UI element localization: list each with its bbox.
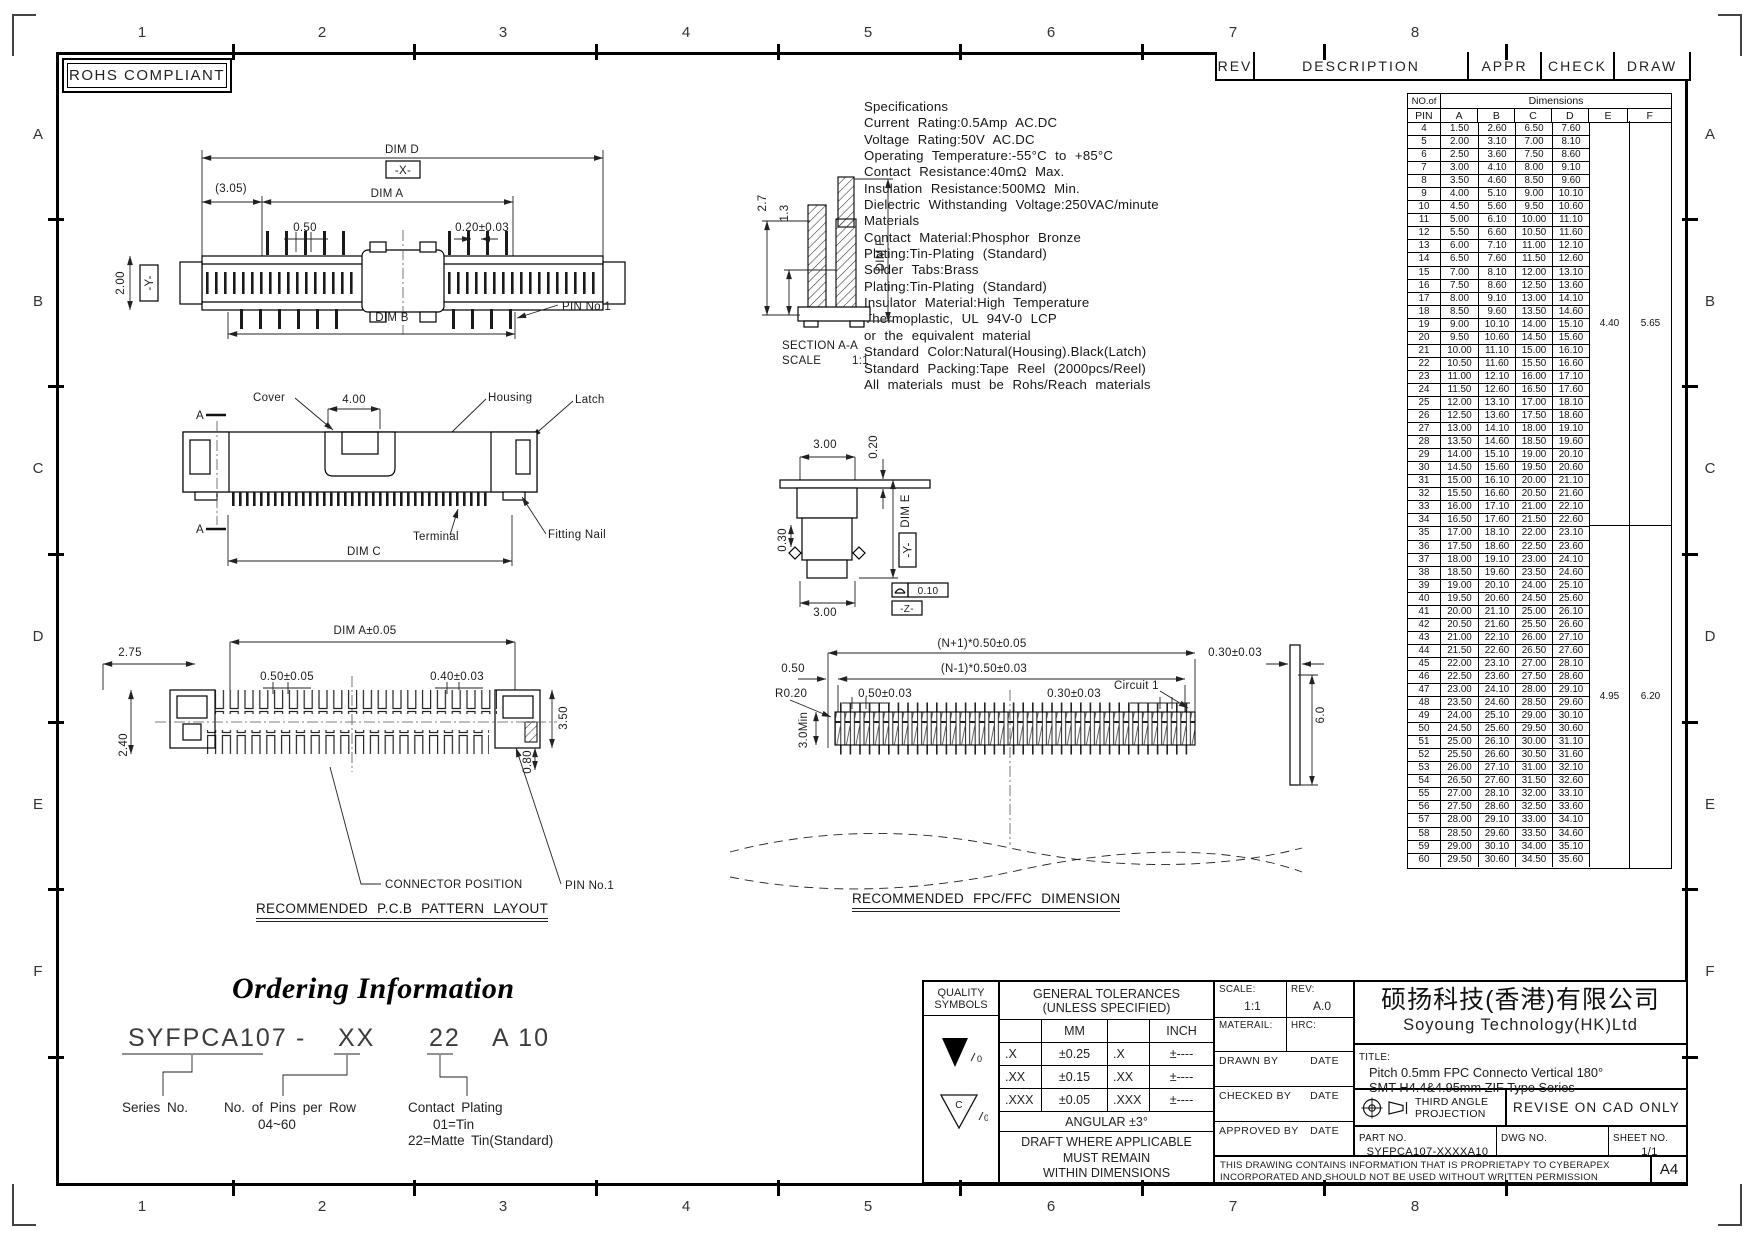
fpc-r020-label: R0.20 [775,688,807,700]
dim-table-body: 41.502.606.507.6052.003.107.008.1062.503… [1408,123,1590,867]
dim-table-row: 5024.5025.6029.5030.60 [1408,723,1590,736]
ef-value-f2: 6.20 [1630,526,1671,868]
dim-table-cell: 20 [1408,332,1441,344]
dim-table-cell: 14.50 [1441,462,1479,474]
rev-label: REV: [1291,984,1353,995]
zone-tick [48,721,64,724]
dim-table-cell: 29.00 [1441,841,1479,853]
dim-table-cell: 31 [1408,475,1441,487]
dim-27-label: 2.7 [757,195,769,212]
dim-table-cell: 18.50 [1516,436,1553,448]
dim-table-cell: 4.10 [1479,162,1516,174]
dim-table-row: 125.506.6010.5011.60 [1408,227,1590,240]
dim-table-cell: 33.60 [1553,801,1590,813]
pcb-350-label: 3.50 [558,706,570,730]
dim-table-cell: 25.10 [1553,580,1590,592]
dim-table-cell: 17.50 [1516,410,1553,422]
corner-mark [1718,14,1742,56]
dim-table-cell: 31.00 [1516,762,1553,774]
dim-table-ef-columns: 4.40 5.65 4.95 6.20 [1590,121,1671,868]
svg-text:0: 0 [984,1113,988,1123]
fpc-30min-label: 3.0Min [798,712,810,748]
dim-table-row: 3617.5018.6022.5023.60 [1408,541,1590,554]
zone-tick [777,1180,780,1196]
dim-table-row: 5326.0027.1031.0032.10 [1408,762,1590,775]
dim-table-row: 3115.0016.1020.0021.10 [1408,475,1590,488]
zone-row-label: F [1700,963,1720,980]
proprietary-note-line-1: THIS DRAWING CONTAINS INFORMATION THAT I… [1220,1160,1650,1172]
dim-table-cell: 15.00 [1441,475,1479,487]
dim-table-cell: 19.00 [1441,580,1479,592]
dim-table-cell: 42 [1408,619,1441,631]
dim-table-cell: 32.10 [1553,762,1590,774]
dim-table-cell: 12.00 [1441,397,1479,409]
dim-table-cell: 8 [1408,175,1441,187]
dim-table-cell: 7.60 [1553,123,1590,135]
dim-table-cell: 13.10 [1479,397,1516,409]
dim-table-cell: 10.60 [1479,332,1516,344]
specification-line: Contact Resistance:40mΩ Max. [864,164,1159,180]
zone-row-label: C [28,460,48,477]
dim-table-cell: 15.60 [1479,462,1516,474]
general-tolerances-table: GENERAL TOLERANCES (UNLESS SPECIFIED) MM… [1000,982,1215,1182]
circuit-1-label: Circuit 1 [1114,680,1159,692]
dim-table-row: 2110.0011.1015.0016.10 [1408,345,1590,358]
dim-c-label: DIM C [347,546,381,558]
dim-table-cell: 13.00 [1516,293,1553,305]
dim-table-cell: 27.10 [1479,762,1516,774]
dim-table-cell: 2.60 [1479,123,1516,135]
dim-table-cell: 20.00 [1441,606,1479,618]
dim-table-row: 3919.0020.1024.0025.10 [1408,580,1590,593]
dim-table-cell: 23 [1408,371,1441,383]
dim-table-cell: 41 [1408,606,1441,618]
dim-table-cell: 20.60 [1553,462,1590,474]
dim-table-row: 209.5010.6014.5015.60 [1408,332,1590,345]
ordering-information-title: Ordering Information [232,972,515,1006]
dim-table-cell: 15.50 [1441,488,1479,500]
dim-table-cell: 17.10 [1479,501,1516,513]
zone-row-label: D [1700,628,1720,645]
dim-table-cell: 22.50 [1516,541,1553,553]
zone-tick [1323,44,1326,60]
dim-table-cell: 9 [1408,188,1441,200]
dim-table-cell: 19 [1408,319,1441,331]
dim-table-cell: 18.10 [1553,397,1590,409]
dim-table-row: 104.505.609.5010.60 [1408,201,1590,214]
zone-tick [595,1180,598,1196]
dim-table-cell: 35 [1408,527,1441,539]
dim-table-cell: 30.60 [1479,854,1516,867]
zone-col-label: 3 [493,1198,513,1215]
zone-tick [1682,1056,1698,1059]
dim-table-cell: 25.60 [1553,593,1590,605]
dim-table-row: 3316.0017.1021.0022.10 [1408,501,1590,514]
dim-table-group-header: Dimensions [1441,94,1671,108]
zone-row-label: A [1700,126,1720,143]
specification-line: Materials [864,213,1159,229]
dim-table-cell: 12.60 [1553,253,1590,265]
tol-cell: ±---- [1150,1066,1213,1088]
dim-table-cell: 26.10 [1479,736,1516,748]
dim-table-cell: 16.10 [1553,345,1590,357]
dim-table-cell: 9.50 [1441,332,1479,344]
dim-table-cell: 26.10 [1553,606,1590,618]
dim-table-cell: 13.60 [1479,410,1516,422]
dim-table-cell: 20.50 [1516,488,1553,500]
dim-table-cell: 15 [1408,267,1441,279]
pcb-layout-title: RECOMMENDED P.C.B PATTERN LAYOUT [256,901,548,919]
dim-table-cell: 46 [1408,671,1441,683]
dim-table-cell: 29.50 [1441,854,1479,867]
ef-value-e1: 4.40 [1590,121,1630,525]
dim-table-cell: 43 [1408,632,1441,644]
dim-table-cell: 60 [1408,854,1441,867]
dim-table-cell: 25 [1408,397,1441,409]
dim-table-cell: 14 [1408,253,1441,265]
rev-value: A.0 [1291,999,1353,1013]
side-020-label: 0.20 [868,435,880,459]
y-datum-label: -Y- [144,275,156,290]
dim-table-row: 73.004.108.009.10 [1408,162,1590,175]
dim-table-cell: 45 [1408,658,1441,670]
dim-table-cell: 12.50 [1441,410,1479,422]
dim-table-cell: 22 [1408,358,1441,370]
scale-label: SCALE: [1219,984,1286,995]
dim-table-cell: 25.00 [1516,606,1553,618]
dim-table-row: 199.0010.1014.0015.10 [1408,319,1590,332]
dim-table-cell: 9.60 [1553,175,1590,187]
dim-table-cell: 8.50 [1441,306,1479,318]
dim-table-row: 136.007.1011.0012.10 [1408,240,1590,253]
dim-table-cell: 23.10 [1479,658,1516,670]
dim-b-label: DIM B [375,312,408,324]
dim-table-cell: 17.10 [1553,371,1590,383]
dim-table-row: 2512.0013.1017.0018.10 [1408,397,1590,410]
dim-table-cell: 23.00 [1441,684,1479,696]
dim-table-cell: 10.50 [1516,227,1553,239]
dim-400-label: 4.00 [342,394,366,406]
dim-table-cell: 24.10 [1553,554,1590,566]
dim-table-cell: 28.50 [1441,828,1479,840]
dim-table-cell: 17.00 [1516,397,1553,409]
specification-line: Insulator Material:High Temperature [864,295,1159,311]
pcb-240-label: 2.40 [118,733,130,757]
dim-table-cell: 34.50 [1516,854,1553,867]
dim-table-cell: 30.10 [1479,841,1516,853]
drawing-fpc-dimension: (N+1)*0.50±0.05 (N-1)*0.50±0.03 0.50 R0.… [690,590,1350,925]
zone-tick [48,1056,64,1059]
series-no-label: Series No. [122,1100,188,1115]
dim-table-cell: 29.50 [1516,723,1553,735]
dim-col-c: C [1515,109,1552,122]
dim-a-label: DIM A [371,188,404,200]
dim-table-cell: 9.50 [1516,201,1553,213]
dwg-no-label: DWG NO. [1501,1133,1547,1144]
specification-line: Plating:Tin-Plating (Standard) [864,246,1159,262]
rohs-badge: ROHS COMPLIANT [62,58,232,93]
dim-table-cell: 11.50 [1441,384,1479,396]
tol-cell: ±---- [1150,1089,1213,1111]
dim-table-cell: 14.00 [1516,319,1553,331]
housing-label: Housing [488,392,532,404]
dim-table-cell: 7.50 [1516,149,1553,161]
dim-table-cell: 26.50 [1441,775,1479,787]
dim-table-cell: 13 [1408,240,1441,252]
approved-by-label: APPROVED BY [1219,1125,1299,1155]
dim-table-cell: 25.50 [1441,749,1479,761]
dim-table-cell: 24.50 [1441,723,1479,735]
dim-table-cell: 6.00 [1441,240,1479,252]
zone-tick [1682,218,1698,221]
dim-table-cell: 35.60 [1553,854,1590,867]
dim-table-cell: 15.10 [1553,319,1590,331]
projection-label-1: THIRD ANGLE [1415,1096,1488,1108]
zone-col-label: 7 [1223,24,1243,41]
tol-cell: ±0.05 [1042,1089,1108,1111]
dim-table-cell: 9.00 [1516,188,1553,200]
dim-table-row: 6029.5030.6034.5035.60 [1408,854,1590,867]
plating-option-1: 01=Tin [433,1117,474,1132]
zone-col-label: 1 [132,24,152,41]
drawing-section-aa: 2.7 1.3 DIM F SECTION A-A SCALE 1:1 [720,175,900,370]
dim-table-row: 2612.5013.6017.5018.60 [1408,410,1590,423]
corner-mark [12,14,36,56]
dim-table-cell: 18.00 [1516,423,1553,435]
dim-table-cell: 5.10 [1479,188,1516,200]
dim-table-cell: 31.10 [1553,736,1590,748]
dim-table-cell: 10.50 [1441,358,1479,370]
dim-table-cell: 19.60 [1553,436,1590,448]
dim-table-row: 146.507.6011.5012.60 [1408,253,1590,266]
dim-table-cell: 19.00 [1516,449,1553,461]
dim-table-cell: 30.00 [1516,736,1553,748]
dim-table-cell: 23.60 [1479,671,1516,683]
dim-table-cell: 22.10 [1479,632,1516,644]
dim-table-row: 5828.5029.6033.5034.60 [1408,828,1590,841]
title-label: TITLE: [1359,1052,1390,1063]
dim-table-cell: 12.50 [1516,280,1553,292]
pcb-275-label: 2.75 [118,647,142,659]
dim-table-cell: 28.60 [1479,801,1516,813]
dim-table-cell: 44 [1408,645,1441,657]
dim-table-cell: 33.00 [1516,814,1553,826]
pcb-040-label: 0.40±0.03 [430,671,484,683]
dim-table-row: 5527.0028.1032.0033.10 [1408,788,1590,801]
dim-table-cell: 23.50 [1441,697,1479,709]
dim-table-cell: 7.60 [1479,253,1516,265]
dim-table-cell: 55 [1408,788,1441,800]
dim-table-row: 2311.0012.1016.0017.10 [1408,371,1590,384]
dim-table-cell: 10.00 [1516,214,1553,226]
dim-table-cell: 20.60 [1479,593,1516,605]
dim-table-cell: 21.60 [1479,619,1516,631]
dim-table-cell: 6.10 [1479,214,1516,226]
specification-line: Operating Temperature:-55°C to +85°C [864,148,1159,164]
proprietary-note-line-2: INCORPORATED AND SHOULD NOT BE USED WITH… [1220,1172,1650,1184]
dim-table-cell: 16.50 [1516,384,1553,396]
tolerances-header-2: (UNLESS SPECIFIED) [1043,1001,1171,1015]
plating-option-2: 22=Matte Tin(Standard) [408,1133,553,1148]
zone-tick [1682,721,1698,724]
dim-table-cell: 22.00 [1516,527,1553,539]
dim-table-cell: 5.50 [1441,227,1479,239]
dim-table-cell: 4 [1408,123,1441,135]
dim-table-row: 157.008.1012.0013.10 [1408,267,1590,280]
tol-cell: .XX [1000,1066,1042,1088]
zone-tick [48,553,64,556]
side-y-datum-label: -Y- [903,542,915,557]
zone-tick [1505,44,1508,60]
dim-table-cell: 21.10 [1479,606,1516,618]
dim-table-cell: 23.50 [1516,567,1553,579]
paper-size-label: A4 [1650,1157,1686,1182]
dim-table-cell: 37 [1408,554,1441,566]
rohs-label: ROHS COMPLIANT [67,63,227,88]
latch-label: Latch [575,394,605,406]
dim-305-label: (3.05) [215,183,247,195]
specifications-block: SpecificationsCurrent Rating:0.5Amp AC.D… [864,99,1159,393]
revision-table: REV DESCRIPTION APPR CHECK DRAW [1215,52,1691,81]
drawing-info-column: SCALE: 1:1 REV: A.0 MATERAIL: HRC: DRAWN… [1215,982,1355,1155]
zone-col-label: 5 [858,24,878,41]
dim-table-cell: 13.50 [1441,436,1479,448]
section-a-top-label: A [196,410,204,422]
dim-table-row: 41.502.606.507.60 [1408,123,1590,136]
zone-col-label: 4 [676,24,696,41]
quality-label-1: QUALITY [937,987,984,999]
dim-table-cell: 5.60 [1479,201,1516,213]
tol-note-3: WITHIN DIMENSIONS [1000,1166,1213,1182]
dim-table-cell: 22.60 [1553,514,1590,526]
dim-table-cell: 38 [1408,567,1441,579]
dim-table-cell: 28 [1408,436,1441,448]
dim-table-cell: 7.00 [1441,267,1479,279]
dim-table-row: 3416.5017.6021.5022.60 [1408,514,1590,527]
dim-table-cell: 15.50 [1516,358,1553,370]
dim-table-cell: 32.60 [1553,775,1590,787]
dim-table-cell: 24.00 [1516,580,1553,592]
dim-table-cell: 13.10 [1553,267,1590,279]
dim-table-cell: 6.60 [1479,227,1516,239]
dim-table-cell: 21.50 [1441,645,1479,657]
drawing-sheet: ROHS COMPLIANT REV DESCRIPTION APPR CHEC… [0,0,1754,1240]
zone-tick [959,44,962,60]
dim-col-d: D [1552,109,1589,122]
dim-table-cell: 21.00 [1516,501,1553,513]
dim-table-cell: 18.50 [1441,567,1479,579]
corner-mark [12,1184,36,1226]
tol-angular: ANGULAR ±3° [1000,1112,1213,1132]
dim-table-cell: 26.00 [1441,762,1479,774]
dim-table-cell: 36 [1408,541,1441,553]
corner-mark [1718,1184,1742,1226]
zone-row-label: D [28,628,48,645]
dim-table-cell: 17.50 [1441,541,1479,553]
dim-table-row: 3818.5019.6023.5024.60 [1408,567,1590,580]
dim-e-label: DIM E [900,494,912,527]
specification-line: Standard Packing:Tape Reel (2000pcs/Reel… [864,361,1159,377]
dim-table-cell: 29.60 [1553,697,1590,709]
dim-table-cell: 28.50 [1516,697,1553,709]
dim-table-cell: 33.50 [1516,828,1553,840]
dim-table-cell: 8.10 [1479,267,1516,279]
dim-table-cell: 7.50 [1441,280,1479,292]
dim-table-row: 4421.5022.6026.5027.60 [1408,645,1590,658]
dim-table-cell: 24.50 [1516,593,1553,605]
dim-table-cell: 4.00 [1441,188,1479,200]
dim-table-cell: 32 [1408,488,1441,500]
zone-tick [48,888,64,891]
dim-table-cell: 11 [1408,214,1441,226]
dim-table-cell: 10.10 [1479,319,1516,331]
drawing-front-view: Cover 4.00 Housing Latch A A Terminal Fi… [150,385,630,570]
dim-table-cell: 11.00 [1516,240,1553,252]
dim-table-cell: 25.10 [1479,710,1516,722]
dim-table-cell: 27.60 [1553,645,1590,657]
zone-col-label: 6 [1041,1198,1061,1215]
dim-table-row: 4019.5020.6024.5025.60 [1408,593,1590,606]
fpc-dimension-title: RECOMMENDED FPC/FFC DIMENSION [852,891,1120,909]
dim-table-cell: 10 [1408,201,1441,213]
dim-table-row: 3215.5016.6020.5021.60 [1408,488,1590,501]
dim-table-cell: 9.60 [1479,306,1516,318]
dim-table-row: 5225.5026.6030.5031.60 [1408,749,1590,762]
dim-table-cell: 17 [1408,293,1441,305]
dim-table-cell: 20.00 [1516,475,1553,487]
dim-table-cell: 15.00 [1516,345,1553,357]
dim-table-cell: 2.50 [1441,149,1479,161]
dim-table-cell: 20.10 [1553,449,1590,461]
drawing-pcb-layout: DIM A±0.05 2.75 0.50±0.05 0.40±0.03 3.50… [95,590,655,910]
drawn-by-label: DRAWN BY [1219,1055,1278,1086]
company-name-en: Soyoung Technology(HK)Ltd [1355,1016,1686,1035]
dim-table-cell: 3.60 [1479,149,1516,161]
dim-table-cell: 6.50 [1441,253,1479,265]
tol-inch-header: INCH [1150,1020,1213,1042]
sheet-no-label: SHEET NO. [1613,1133,1668,1144]
dim-d-label: DIM D [385,144,419,156]
dim-table-cell: 23.10 [1553,527,1590,539]
zone-col-label: 2 [312,24,332,41]
dim-table-cell: 7.00 [1516,136,1553,148]
dim-table-cell: 30.50 [1516,749,1553,761]
dim-table-row: 4120.0021.1025.0026.10 [1408,606,1590,619]
specification-line: Insulation Resistance:500MΩ Min. [864,181,1159,197]
dim-table-cell: 25.00 [1441,736,1479,748]
dim-table-cell: 8.00 [1441,293,1479,305]
dim-table-row: 83.504.608.509.60 [1408,175,1590,188]
dim-table-cell: 26.60 [1553,619,1590,631]
dim-table-cell: 7 [1408,162,1441,174]
zone-tick [48,385,64,388]
zone-row-label: B [1700,293,1720,310]
dim-table-row: 3517.0018.1022.0023.10 [1408,527,1590,540]
dim-table-cell: 21.50 [1516,514,1553,526]
dim-table-cell: 54 [1408,775,1441,787]
dim-table-cell: 19.10 [1553,423,1590,435]
dim-table-cell: 59 [1408,841,1441,853]
dim-table-cell: 48 [1408,697,1441,709]
dim-table-cell: 18.60 [1479,541,1516,553]
zone-tick [1141,44,1144,60]
dim-table-cell: 12.60 [1479,384,1516,396]
dim-table-cell: 1.50 [1441,123,1479,135]
dim-table-cell: 11.50 [1516,253,1553,265]
projection-label-2: PROJECTION [1415,1108,1488,1120]
dim-table-cell: 26.00 [1516,632,1553,644]
zone-col-label: 6 [1041,24,1061,41]
